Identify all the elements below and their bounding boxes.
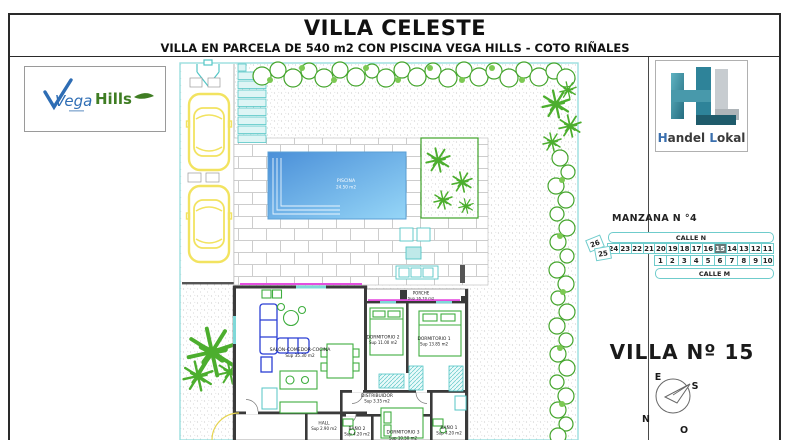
room-area-dormitorio2: Sup 11.00 m2 [369, 340, 398, 345]
compass-n: N [642, 414, 650, 425]
lokal-initial: L [709, 131, 717, 145]
manzana-diagram: MANZANA N °4 CALLE N 2423222120191817161… [588, 213, 786, 287]
manzana-row-top: 2423222120191817161514131211 [608, 243, 774, 254]
street-calle-n: CALLE N [608, 232, 774, 243]
site-plan-drawing: PISCINA 24.50 m2 [170, 57, 648, 440]
logo-h-crossbar [671, 90, 711, 102]
vega-hills-logo: Vega Hills [24, 66, 166, 132]
villa-number-label: VILLA Nº 15 [596, 340, 768, 364]
pool-area: 24.50 m2 [336, 185, 356, 190]
room-area-salon: Sup 35.30 m2 [285, 353, 315, 358]
room-area-porche: Sup 16.70 m2 [408, 296, 435, 301]
compass-rose: E S O N [628, 364, 720, 438]
plot-cell-11: 11 [761, 243, 774, 254]
hills-word: Hills [95, 90, 132, 108]
room-area-dormitorio1: Sup 13.85 m2 [420, 342, 449, 347]
manzana-title: MANZANA N °4 [612, 213, 697, 224]
plan-sheet: VILLA CELESTE VILLA EN PARCELA DE 540 m2… [0, 0, 790, 440]
planting-bed [421, 138, 478, 218]
plot-cell-10: 10 [761, 255, 774, 266]
logo-foot-dark [696, 115, 736, 125]
handel-lokal-logo-art [663, 65, 741, 129]
vega-tagline-mark [69, 110, 84, 112]
pool-label: PISCINA [337, 178, 356, 184]
frame-left-border [8, 13, 10, 440]
compass-e: E [655, 372, 662, 383]
compass-s: S [692, 381, 699, 392]
room-area-hall: Sup 2.90 m2 [311, 426, 337, 431]
pool: PISCINA 24.50 m2 [268, 152, 406, 219]
vega-hills-logo-art: Vega Hills [31, 75, 159, 123]
handel-lokal-logo: Handel Lokal [655, 60, 748, 152]
leaf-swoosh-icon [134, 93, 154, 99]
vega-word: Vega [55, 92, 92, 110]
street-calle-m: CALLE M [655, 268, 774, 279]
room-area-bano1: Sup 4.20 m2 [436, 431, 462, 436]
house-floor-plan: PORCHE Sup 16.70 m2 SALÓN-COMEDOR-COCINA… [212, 283, 468, 440]
compass-o: O [680, 425, 688, 436]
plot-cell-25: 25 [594, 246, 612, 262]
room-area-distribuidor: Sup 3.35 m2 [364, 399, 390, 404]
room-area-dormitorio3: Sup 10.50 m2 [389, 436, 418, 440]
page-title: VILLA CELESTE [0, 16, 790, 40]
page-subtitle: VILLA EN PARCELA DE 540 m2 CON PISCINA V… [0, 41, 790, 55]
room-area-bano2: Sup 4.20 m2 [344, 432, 370, 437]
handel-initial: H [658, 131, 668, 145]
frame-top-border [8, 13, 781, 15]
manzana-row-bottom: 12345678910 [655, 255, 774, 266]
room-label-salon: SALÓN-COMEDOR-COCINA [270, 346, 332, 353]
handel-lokal-wordmark: Handel Lokal [658, 131, 746, 145]
